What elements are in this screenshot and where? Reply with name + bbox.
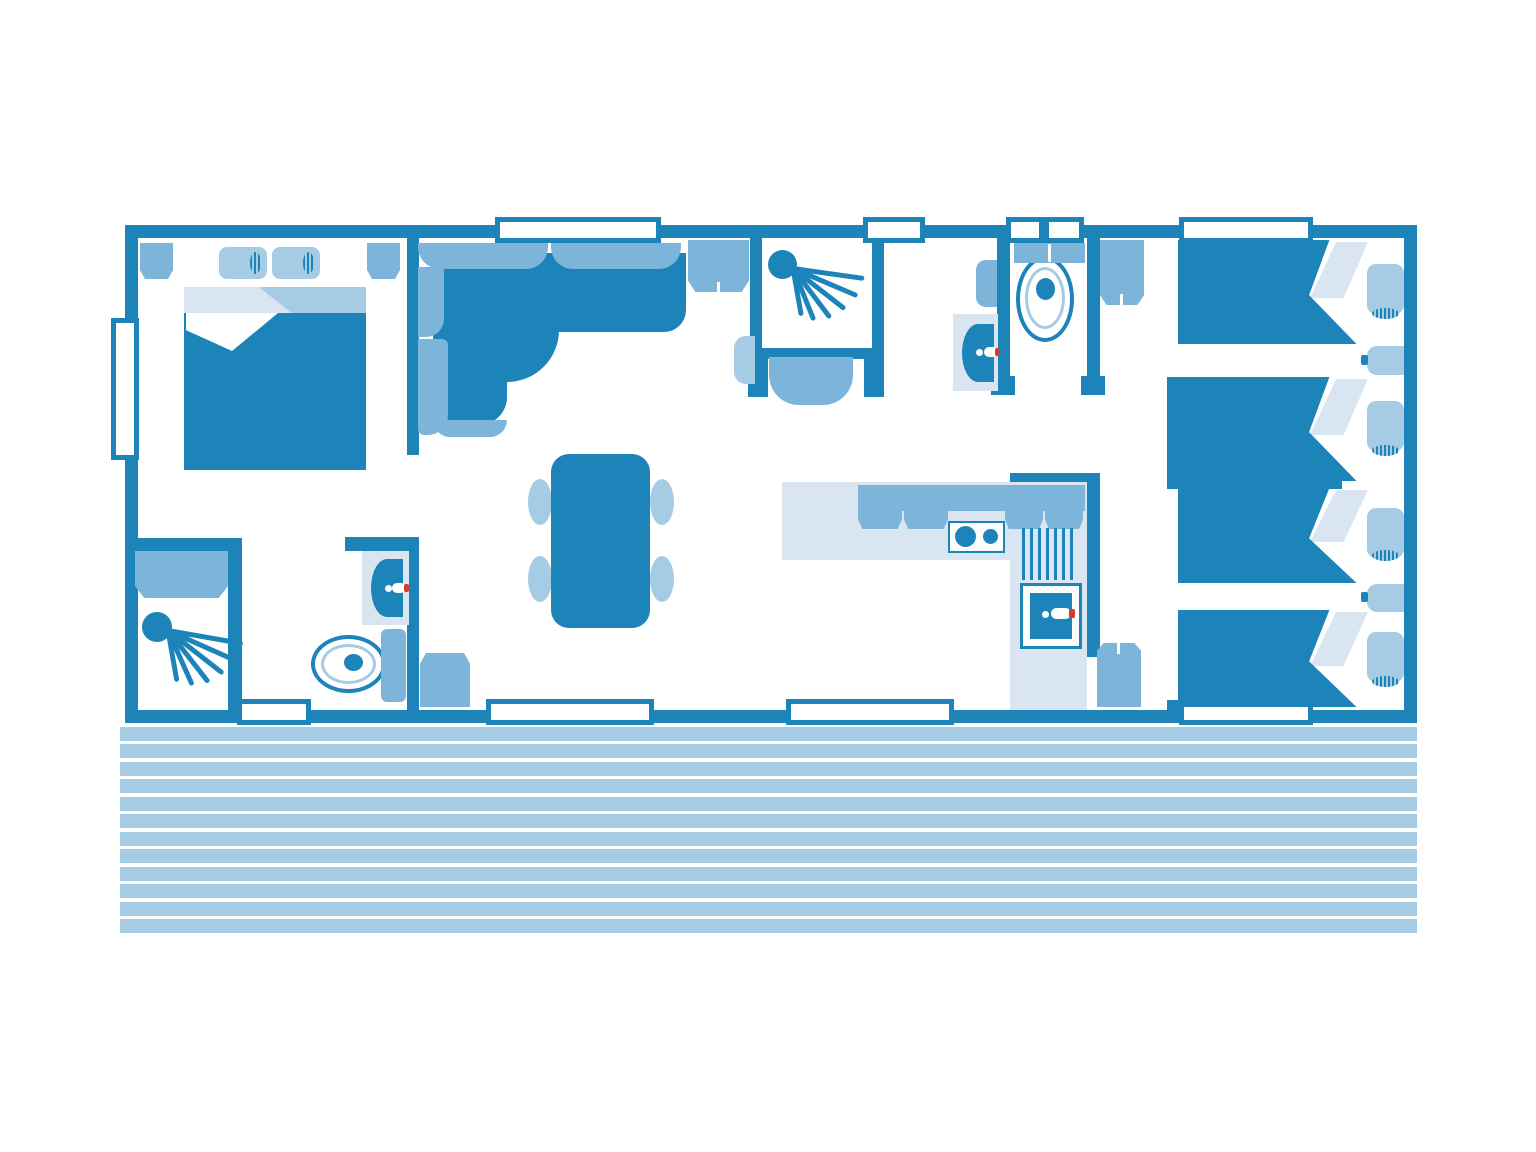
bedroom2-bed1-pillow — [1367, 264, 1404, 314]
wc2-toilet-cistern-split — [1048, 244, 1051, 262]
kitchen-faucet-tip-icon — [1069, 609, 1075, 618]
drainboard-line — [1062, 528, 1065, 580]
wall-shower2-foot-right — [864, 359, 884, 397]
wall-ensuite-divider — [228, 538, 242, 723]
wc2-faucet-dot-icon — [976, 349, 983, 356]
cooktop-burner-large-icon — [955, 526, 976, 547]
drainboard-line — [1022, 528, 1025, 580]
wall-bedrooms-right-divider — [1167, 480, 1342, 489]
master-pillow-right-stitch — [303, 252, 314, 274]
wall-left — [125, 225, 138, 723]
side-stool — [734, 336, 755, 384]
bedroom3-bed1-pillow-stitch — [1372, 550, 1399, 561]
sofa-back-cushion-top-1 — [418, 243, 548, 269]
kitchen-faucet-icon — [1051, 608, 1071, 619]
wc1-toilet-cistern — [381, 629, 406, 702]
floorplan-canvas — [0, 0, 1536, 1152]
kitchen-cabinet-door — [1045, 485, 1083, 529]
terrace-board — [120, 814, 1417, 828]
sofa-back-cushion-top-2 — [551, 243, 681, 269]
terrace-board — [120, 867, 1417, 881]
dining-table — [551, 454, 650, 628]
terrace-board — [120, 884, 1417, 898]
drainboard-line — [1046, 528, 1049, 580]
window-top-wc-a — [1006, 217, 1044, 243]
wall-wc2-right — [1087, 238, 1100, 380]
sofa-back-cushion-left-1 — [418, 267, 444, 337]
drainboard-line — [1030, 528, 1033, 580]
bedroom2-nightstand-knob — [1361, 355, 1368, 365]
tv-cabinet-split — [717, 282, 720, 292]
wc1-faucet-tip-icon — [404, 584, 409, 592]
terrace-board — [120, 744, 1417, 758]
window-bottom-ensuite — [237, 699, 311, 725]
drainboard-line — [1070, 528, 1073, 580]
ensuite-wardrobe — [135, 551, 228, 598]
master-pillow-left-stitch — [250, 252, 261, 274]
window-bottom-kitchen — [786, 699, 954, 725]
wall-shower2-left — [750, 238, 762, 352]
window-top-wc-b — [1044, 217, 1084, 243]
bedroom2-nightstand — [1367, 346, 1404, 375]
window-top-bedroom2 — [1179, 217, 1313, 243]
dining-chair — [528, 556, 552, 602]
wall-kitchen-right — [1087, 485, 1100, 657]
kitchen-cabinet-door — [904, 485, 948, 529]
window-left — [111, 318, 139, 460]
window-top-living — [495, 217, 661, 243]
window-bottom-dining — [486, 699, 654, 725]
terrace-board — [120, 779, 1417, 793]
bedroom2-bed2-pillow — [1367, 401, 1404, 451]
wall-wc2-left — [997, 238, 1010, 380]
kitchen-cabinet-door — [1005, 485, 1043, 529]
terrace-board — [120, 762, 1417, 776]
dining-chair — [528, 479, 552, 525]
terrace-board — [120, 797, 1417, 811]
wc2-toilet-drain-icon — [1036, 278, 1055, 300]
sofa-back-cushion-left-2 — [418, 339, 448, 435]
cooktop-burner-small-icon — [983, 529, 998, 544]
wall-right — [1404, 225, 1417, 723]
sofa-seat-corner-fillet — [507, 330, 559, 382]
bedroom2-bed2-pillow-stitch — [1372, 445, 1399, 456]
kitchen-cabinet-door — [858, 485, 902, 529]
terrace-board — [120, 727, 1417, 741]
wall-shower2-right — [872, 238, 884, 352]
wc2-faucet-tip-icon — [995, 348, 1000, 356]
terrace-board — [120, 919, 1417, 933]
hall-shoe-cabinet — [420, 653, 470, 707]
hall-wardrobe-split — [1120, 294, 1123, 305]
hall-cabinet-split — [1117, 643, 1120, 654]
terrace-board — [120, 849, 1417, 863]
bedroom2-bed1-pillow-stitch — [1372, 308, 1399, 319]
wc1-faucet-dot-icon — [385, 585, 392, 592]
bedroom3-nightstand — [1367, 584, 1404, 612]
master-nightstand-right — [367, 243, 400, 279]
window-top-shower — [863, 217, 925, 243]
dining-chair — [650, 556, 674, 602]
drainboard-line — [1038, 528, 1041, 580]
wall-wc2-right-foot — [1081, 376, 1105, 395]
terrace-board — [120, 902, 1417, 916]
dining-chair — [650, 479, 674, 525]
bedroom3-nightstand-knob — [1361, 592, 1368, 602]
drainboard-line — [1054, 528, 1057, 580]
bedroom3-bed2-pillow — [1367, 632, 1404, 682]
master-nightstand-left — [140, 243, 173, 279]
wc2-side-cabinet — [976, 260, 997, 307]
wc1-toilet-drain-icon — [344, 654, 363, 671]
terrace-board — [120, 832, 1417, 846]
bedroom3-bed2-pillow-stitch — [1372, 676, 1399, 687]
wall-ensuite-top — [125, 538, 242, 551]
shower2-bench — [769, 357, 853, 405]
kitchen-faucet-dot-icon — [1042, 611, 1049, 618]
